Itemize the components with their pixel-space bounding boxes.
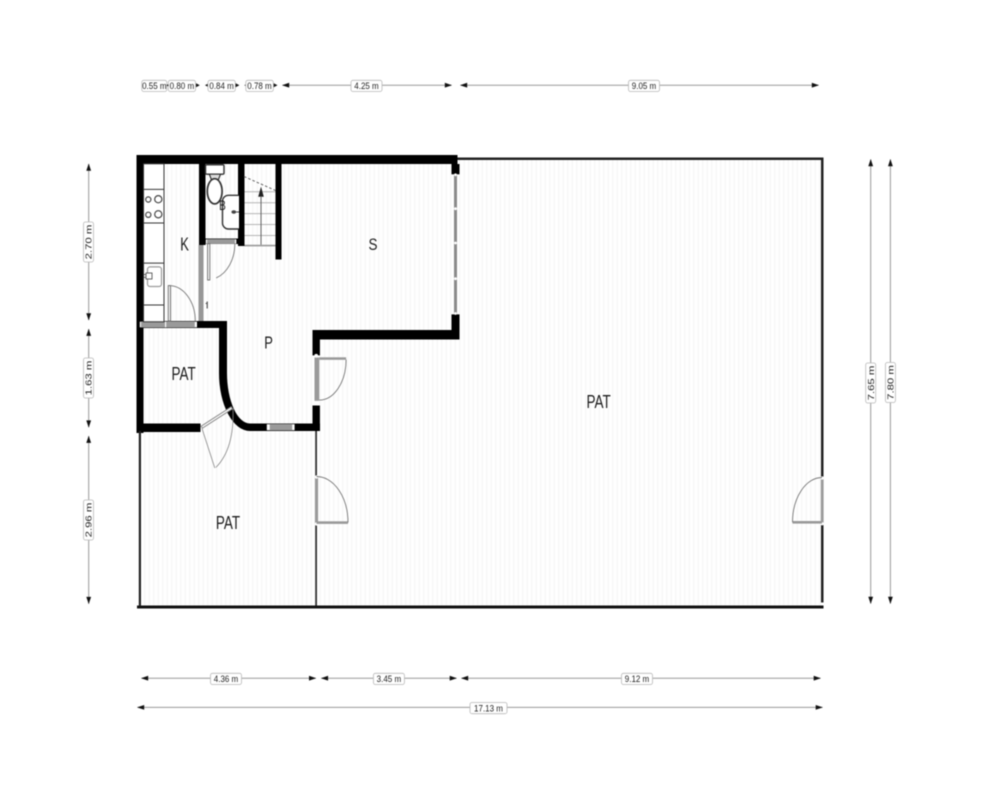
svg-text:P: P — [264, 334, 273, 353]
svg-text:B: B — [219, 197, 226, 213]
svg-text:PAT: PAT — [586, 392, 610, 412]
svg-text:0.80 m: 0.80 m — [170, 81, 194, 92]
svg-text:PAT: PAT — [171, 364, 195, 384]
svg-text:17.13 m: 17.13 m — [474, 703, 503, 714]
svg-text:PAT: PAT — [216, 513, 240, 533]
svg-text:0.84 m: 0.84 m — [209, 81, 233, 92]
svg-text:4.36 m: 4.36 m — [214, 674, 238, 685]
svg-text:1.63 m: 1.63 m — [85, 361, 94, 396]
svg-text:2.70 m: 2.70 m — [85, 225, 94, 260]
svg-text:9.05 m: 9.05 m — [632, 81, 656, 92]
svg-text:0.55 m: 0.55 m — [142, 81, 166, 92]
svg-text:K: K — [180, 234, 189, 255]
svg-text:9.12 m: 9.12 m — [625, 674, 649, 685]
svg-text:0.78 m: 0.78 m — [247, 81, 271, 92]
svg-text:4.25 m: 4.25 m — [354, 81, 378, 92]
svg-text:7.65 m: 7.65 m — [867, 366, 876, 401]
svg-text:3.45 m: 3.45 m — [377, 674, 401, 685]
svg-text:S: S — [368, 236, 377, 255]
svg-text:2.96 m: 2.96 m — [85, 503, 94, 538]
svg-text:7.80 m: 7.80 m — [887, 365, 896, 400]
